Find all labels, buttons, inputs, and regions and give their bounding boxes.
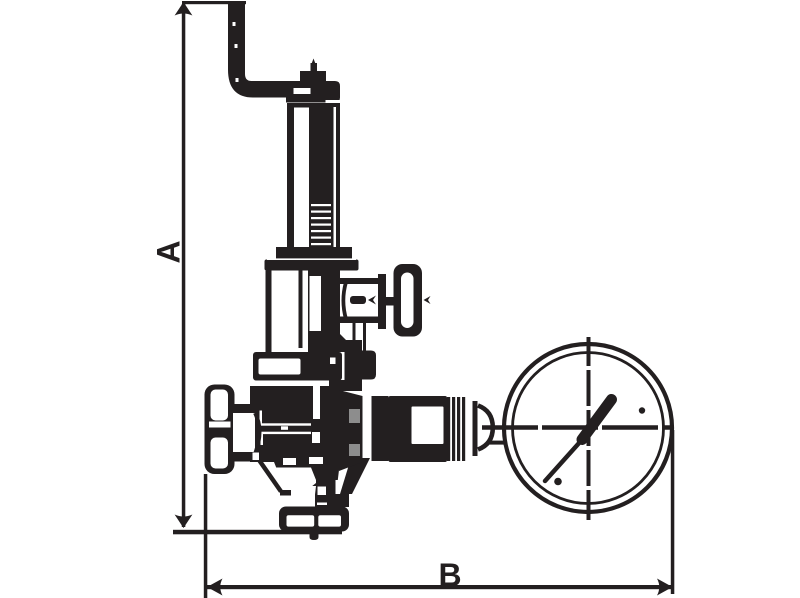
svg-text:A: A (151, 240, 187, 263)
svg-text:B: B (439, 557, 462, 593)
